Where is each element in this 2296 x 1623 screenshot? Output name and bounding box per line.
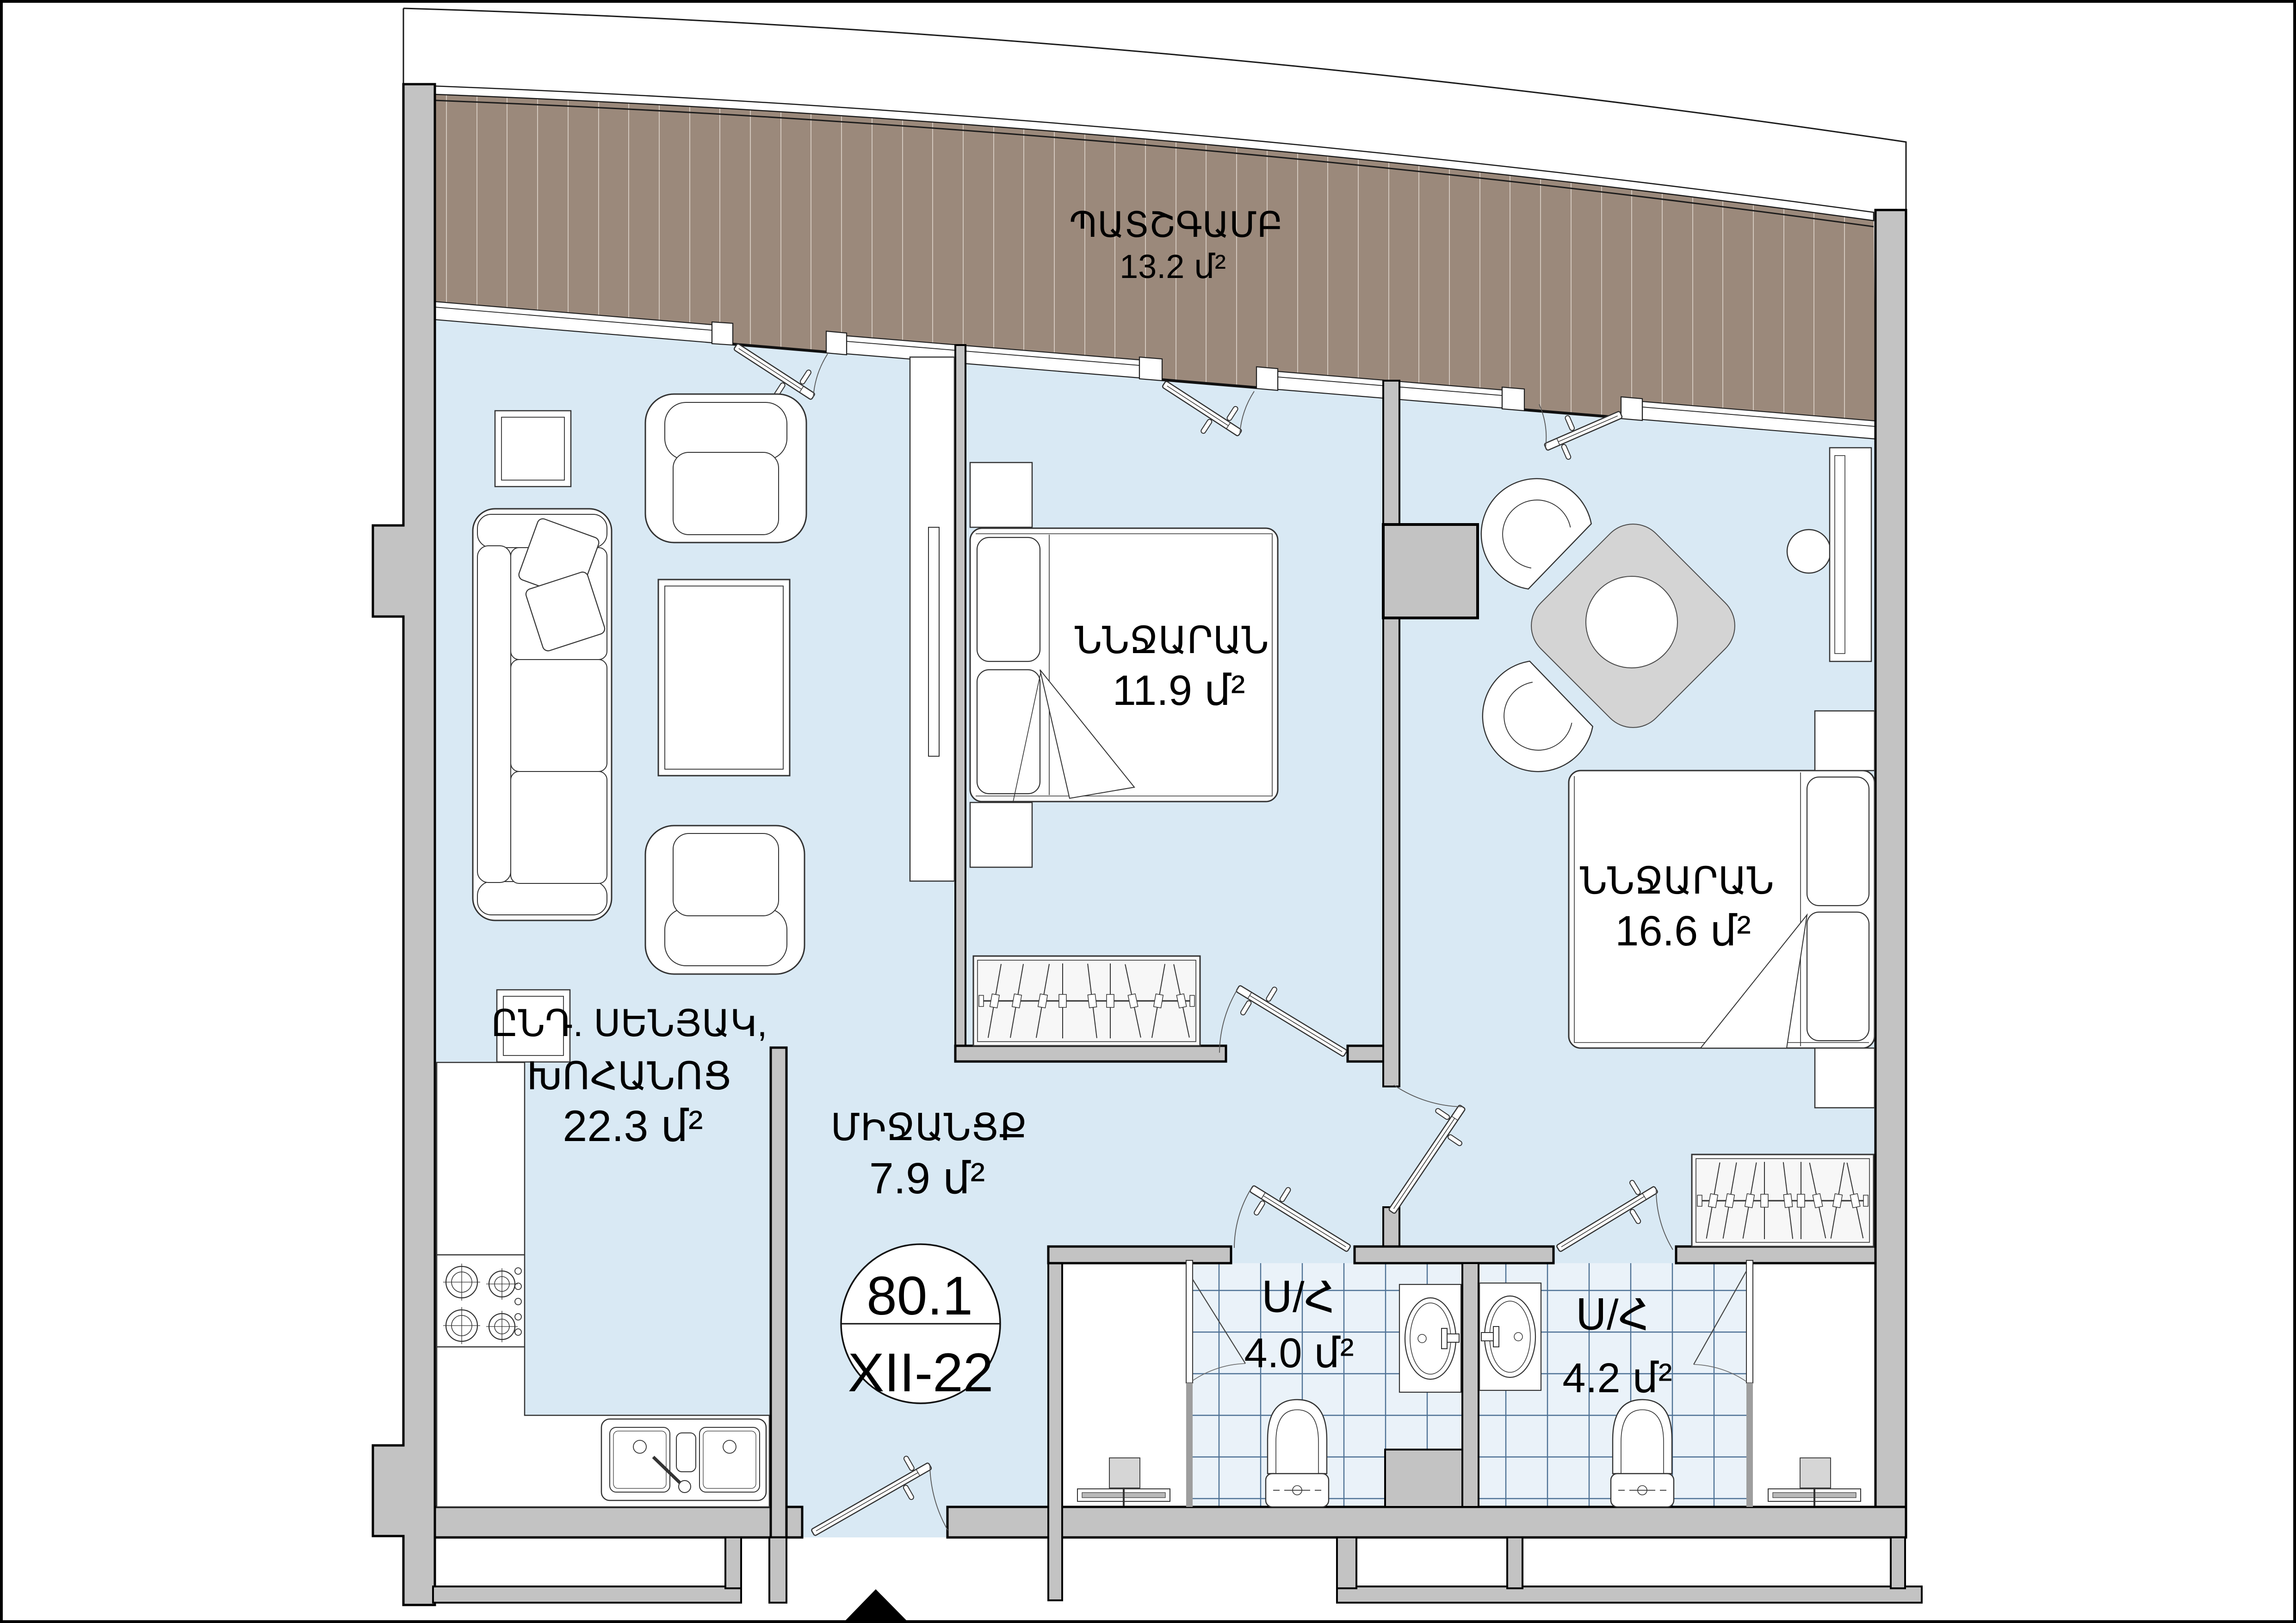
svg-text:Ս/Հ: Ս/Հ bbox=[1262, 1274, 1335, 1321]
svg-text:ՄԻՋԱՆՑՔ: ՄԻՋԱՆՑՔ bbox=[831, 1107, 1027, 1148]
svg-text:XII-22: XII-22 bbox=[848, 1342, 994, 1403]
svg-text:16.6 մ²: 16.6 մ² bbox=[1615, 907, 1751, 955]
svg-text:ՆՆՋԱՐԱՆ: ՆՆՋԱՐԱՆ bbox=[1075, 620, 1269, 661]
svg-text:80.1: 80.1 bbox=[866, 1265, 973, 1327]
svg-text:ԽՈՀԱՆՈՑ: ԽՈՀԱՆՈՑ bbox=[526, 1055, 731, 1098]
svg-text:7.9 մ²: 7.9 մ² bbox=[869, 1154, 985, 1203]
svg-text:4.0 մ²: 4.0 մ² bbox=[1244, 1330, 1354, 1376]
svg-text:13.2 մ²: 13.2 մ² bbox=[1120, 248, 1226, 285]
svg-text:22.3 մ²: 22.3 մ² bbox=[563, 1102, 703, 1151]
svg-text:ՊԱՏՇԳԱՄԲ: ՊԱՏՇԳԱՄԲ bbox=[1069, 205, 1282, 245]
svg-text:ԸՆԴ. ՍԵՆՅԱԿ,: ԸՆԴ. ՍԵՆՅԱԿ, bbox=[491, 1003, 767, 1044]
svg-text:11.9 մ²: 11.9 մ² bbox=[1113, 667, 1245, 714]
svg-text:Ս/Հ: Ս/Հ bbox=[1576, 1291, 1649, 1339]
svg-text:4.2 մ²: 4.2 մ² bbox=[1562, 1355, 1672, 1401]
svg-text:ՆՆՋԱՐԱՆ: ՆՆՋԱՐԱՆ bbox=[1580, 860, 1774, 902]
